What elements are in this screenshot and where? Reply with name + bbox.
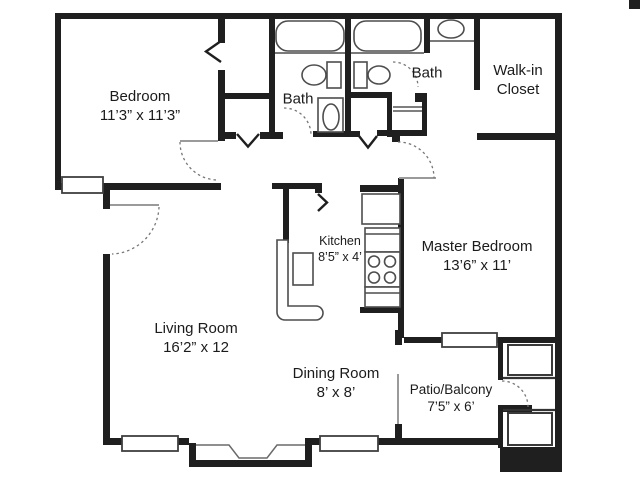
room-name: Kitchen [318, 234, 362, 250]
room-dims: 16’2” x 12 [154, 338, 237, 357]
window-dining [320, 436, 378, 451]
window-master [442, 333, 497, 347]
bedroom-closet-door [206, 41, 221, 62]
wall-right [555, 13, 562, 472]
room-label-kitchen: Kitchen 8’5” x 4’ [318, 234, 362, 266]
sink-2-vanity [354, 62, 367, 88]
wall-kitchen-jamb [315, 189, 322, 193]
room-label-master-bedroom: Master Bedroom 13’6” x 11’ [422, 237, 533, 275]
wall-closet-bottom [218, 93, 275, 99]
master-door-swing [398, 142, 434, 178]
wall-master-door-nub [392, 135, 400, 142]
corner-artifact [629, 0, 640, 9]
toilet-2 [438, 20, 464, 38]
kitchen-door [318, 194, 327, 211]
hall-door [359, 136, 377, 148]
wall-linen-east [422, 98, 427, 135]
room-dims: 13’6” x 11’ [422, 256, 533, 275]
wall-bedroom-east-a [218, 13, 225, 43]
wall-bath-divider [345, 13, 351, 137]
wall-kitchen-top-left [272, 183, 322, 189]
wall-kitchen-west [283, 183, 289, 243]
kitchen-cabinet-lower [365, 287, 400, 307]
room-dims: 7’5” x 6’ [410, 398, 493, 415]
wall-patio-west-bottom [395, 424, 402, 444]
room-label-dining-room: Dining Room 8’ x 8’ [293, 364, 380, 402]
burner [385, 272, 396, 283]
room-name: Dining Room [293, 364, 380, 383]
room-label-living-room: Living Room 16’2” x 12 [154, 319, 237, 357]
wall-closet-bath [269, 13, 275, 137]
room-name: Walk-in Closet [481, 61, 555, 99]
bathtub-1 [276, 21, 344, 51]
wall-bedroom-east-b [218, 70, 225, 141]
window-bedroom [62, 177, 103, 193]
wall-living-left [103, 254, 110, 444]
storage-door-swing [502, 381, 528, 407]
bedroom-door-swing [180, 142, 218, 180]
linen-closet-shelves [393, 107, 422, 111]
sink-1 [302, 65, 326, 85]
storage-closet-1 [508, 345, 552, 375]
wall-left-upper [55, 13, 61, 190]
room-name: Patio/Balcony [410, 381, 493, 398]
burner [369, 256, 380, 267]
bathtub-2 [354, 21, 421, 51]
wall-kitchen-top-right [360, 185, 404, 192]
refrigerator [362, 194, 400, 224]
entry-door-swing [112, 207, 159, 254]
bath1-door-swing [284, 108, 311, 135]
wall-bath2-bottom [346, 92, 392, 98]
wall-living-left-top [103, 188, 110, 209]
sink-1-vanity [327, 62, 341, 88]
room-name: Bath [412, 63, 443, 82]
bathroom-fixtures [275, 20, 474, 132]
bay-window-glazing [196, 445, 305, 458]
bay-wall-right [305, 443, 312, 467]
room-dims: 11’3” x 11’3” [100, 106, 180, 125]
room-label-patio-balcony: Patio/Balcony 7’5” x 6’ [410, 381, 493, 415]
wall-bath2-east [424, 13, 430, 53]
kitchen-cabinet-upper [365, 228, 400, 252]
wall-top [55, 13, 562, 19]
room-name: Bath [283, 89, 314, 108]
wall-kitchen-bottom [360, 307, 404, 313]
wall-hall-d [377, 130, 427, 136]
room-label-bath-2: Bath [412, 63, 443, 82]
sink-2 [368, 66, 390, 84]
room-label-walk-in-closet: Walk-in Closet [481, 61, 555, 99]
wall-storage1-west [498, 343, 503, 380]
wall-patio-west-top [395, 330, 402, 345]
burner [385, 256, 396, 267]
wall-walkin-bottom [477, 133, 557, 140]
floor-plan: Bedroom 11’3” x 11’3” Bath Bath Walk-in … [0, 0, 640, 480]
burner [369, 272, 380, 283]
wall-storage2-west [498, 412, 503, 448]
wall-hall-a [218, 132, 236, 139]
toilet-1-bowl [323, 104, 339, 130]
room-name: Living Room [154, 319, 237, 338]
window-living [122, 436, 178, 451]
wall-patio-bottom [398, 438, 502, 445]
wall-bath2-nub [415, 93, 427, 102]
room-label-bath-1: Bath [283, 89, 314, 108]
kitchen-sink [293, 253, 313, 285]
room-name: Bedroom [100, 87, 180, 106]
room-name: Master Bedroom [422, 237, 533, 256]
wall-hall-b [260, 132, 283, 139]
bay-wall-bottom [189, 460, 312, 467]
room-label-bedroom: Bedroom 11’3” x 11’3” [100, 87, 180, 125]
room-dims: 8’ x 8’ [293, 383, 380, 402]
storage-closet-2 [508, 413, 552, 445]
wall-niche-east [474, 13, 480, 90]
hall-closet-door [237, 134, 259, 147]
stair-mass [500, 447, 558, 472]
room-dims: 8’5” x 4’ [318, 250, 362, 266]
patio-storage [508, 345, 552, 445]
